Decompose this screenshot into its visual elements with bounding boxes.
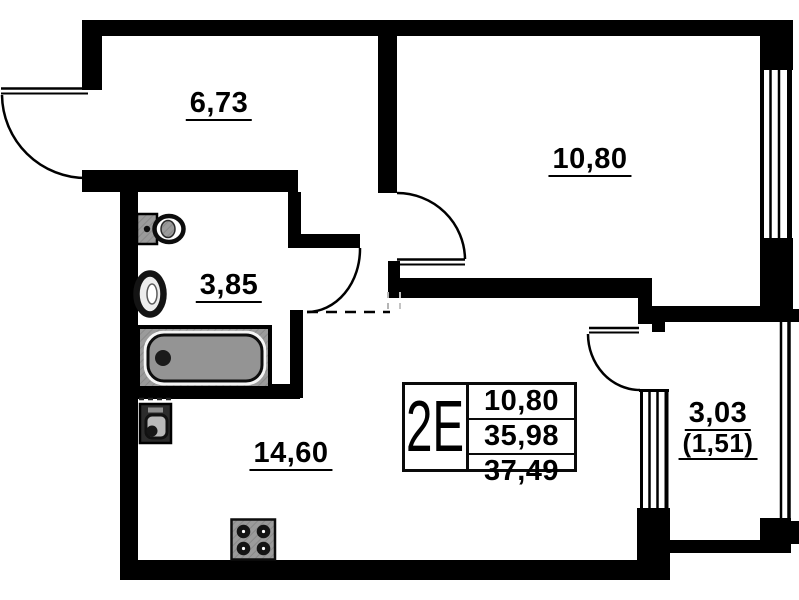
- unit-area-reduced: 35,98: [469, 420, 574, 455]
- plan-linework: [0, 0, 799, 600]
- unit-area-living: 10,80: [469, 385, 574, 420]
- unit-areas-column: 10,80 35,98 37,49: [469, 385, 574, 469]
- unit-type-cell: 2E: [405, 385, 469, 469]
- washing-machine-icon: [139, 399, 172, 443]
- bedroom-door: [397, 193, 465, 265]
- stove-icon: [232, 520, 276, 560]
- entrance-door: [1, 89, 88, 179]
- room-label-bedroom: 10,80: [548, 144, 631, 177]
- unit-type-label: 2E: [406, 395, 464, 460]
- unit-info-table: 2E 10,80 35,98 37,49: [402, 382, 577, 472]
- bathtub-icon: [138, 327, 270, 388]
- living-balcony-window: [639, 390, 669, 508]
- balcony-window: [781, 322, 789, 518]
- sink-icon: [137, 274, 164, 315]
- room-label-hallway: 6,73: [186, 88, 252, 121]
- room-label-bathroom: 3,85: [196, 270, 262, 303]
- bathroom-door-arc: [307, 248, 360, 312]
- balcony-door-arc: [588, 334, 640, 390]
- unit-area-total: 37,49: [469, 455, 574, 488]
- room-label-balcony: 3,03: [685, 398, 751, 431]
- toilet-icon: [137, 214, 184, 244]
- bathroom-door: [307, 248, 360, 312]
- bedroom-window: [762, 70, 790, 238]
- room-label-balcony-reduced: (1,51): [679, 430, 758, 460]
- entrance-door-arc: [2, 95, 86, 178]
- bedroom-door-arc: [397, 193, 465, 259]
- balcony-door: [588, 328, 640, 390]
- room-label-kitchen-living: 14,60: [249, 438, 332, 471]
- floor-plan: 6,73 10,80 3,85 14,60 3,03 (1,51) 2E 10,…: [0, 0, 799, 600]
